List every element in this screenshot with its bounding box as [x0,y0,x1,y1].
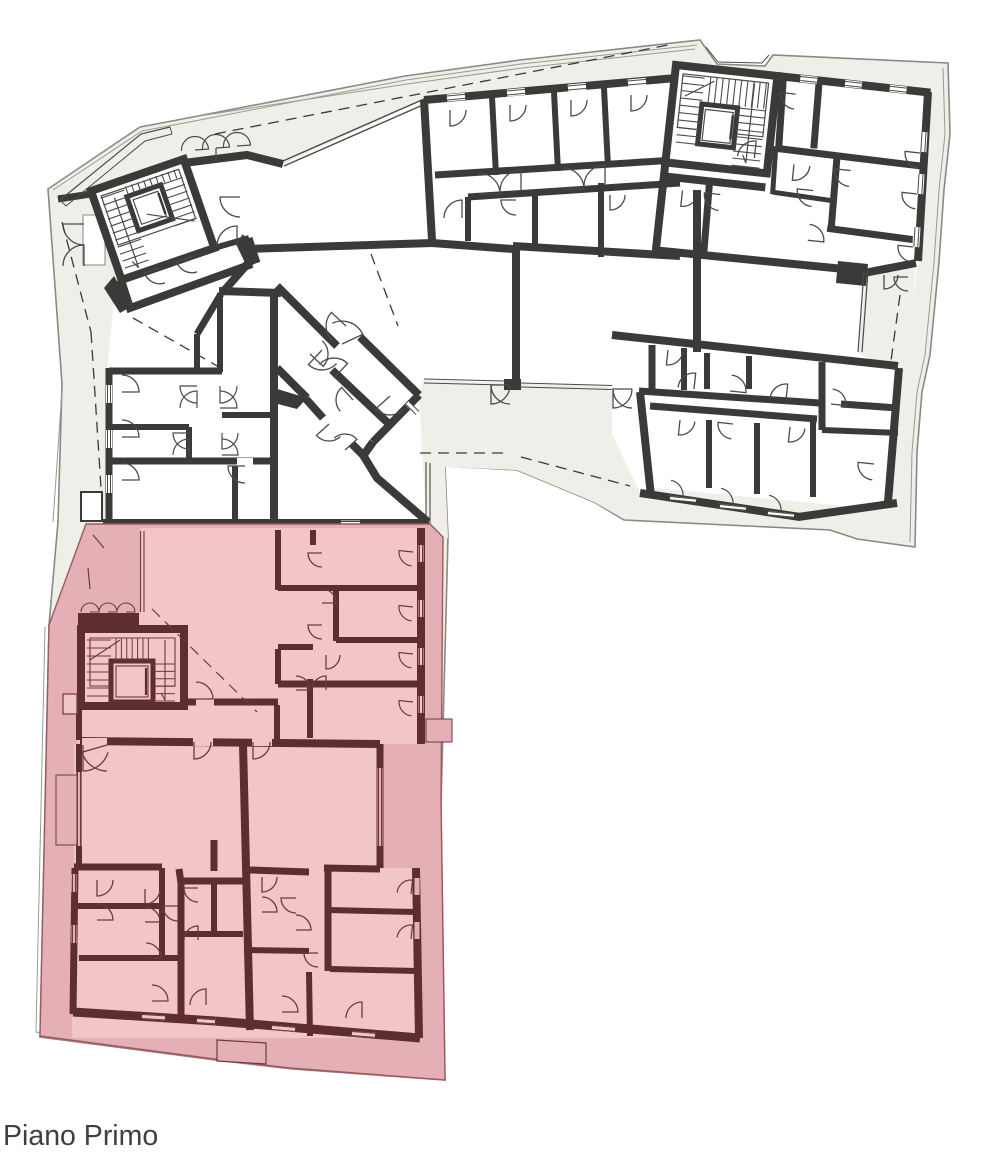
svg-text:Piano Primo: Piano Primo [3,1120,158,1152]
